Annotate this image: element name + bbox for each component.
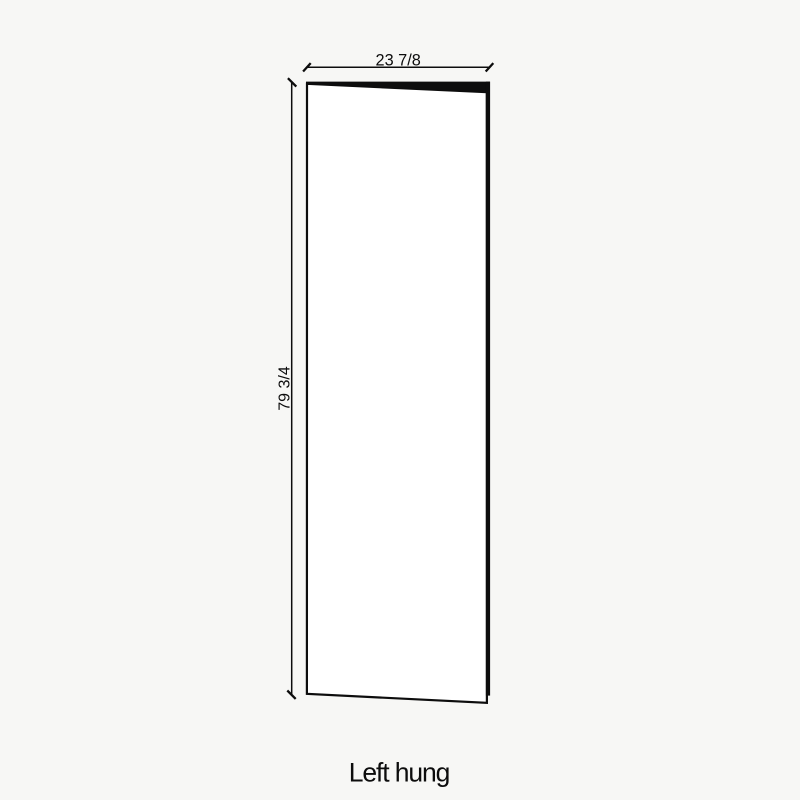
svg-text:23 7/8: 23 7/8 — [376, 52, 421, 70]
svg-text:79 3/4: 79 3/4 — [276, 366, 293, 411]
svg-text:Left hung: Left hung — [349, 757, 450, 787]
